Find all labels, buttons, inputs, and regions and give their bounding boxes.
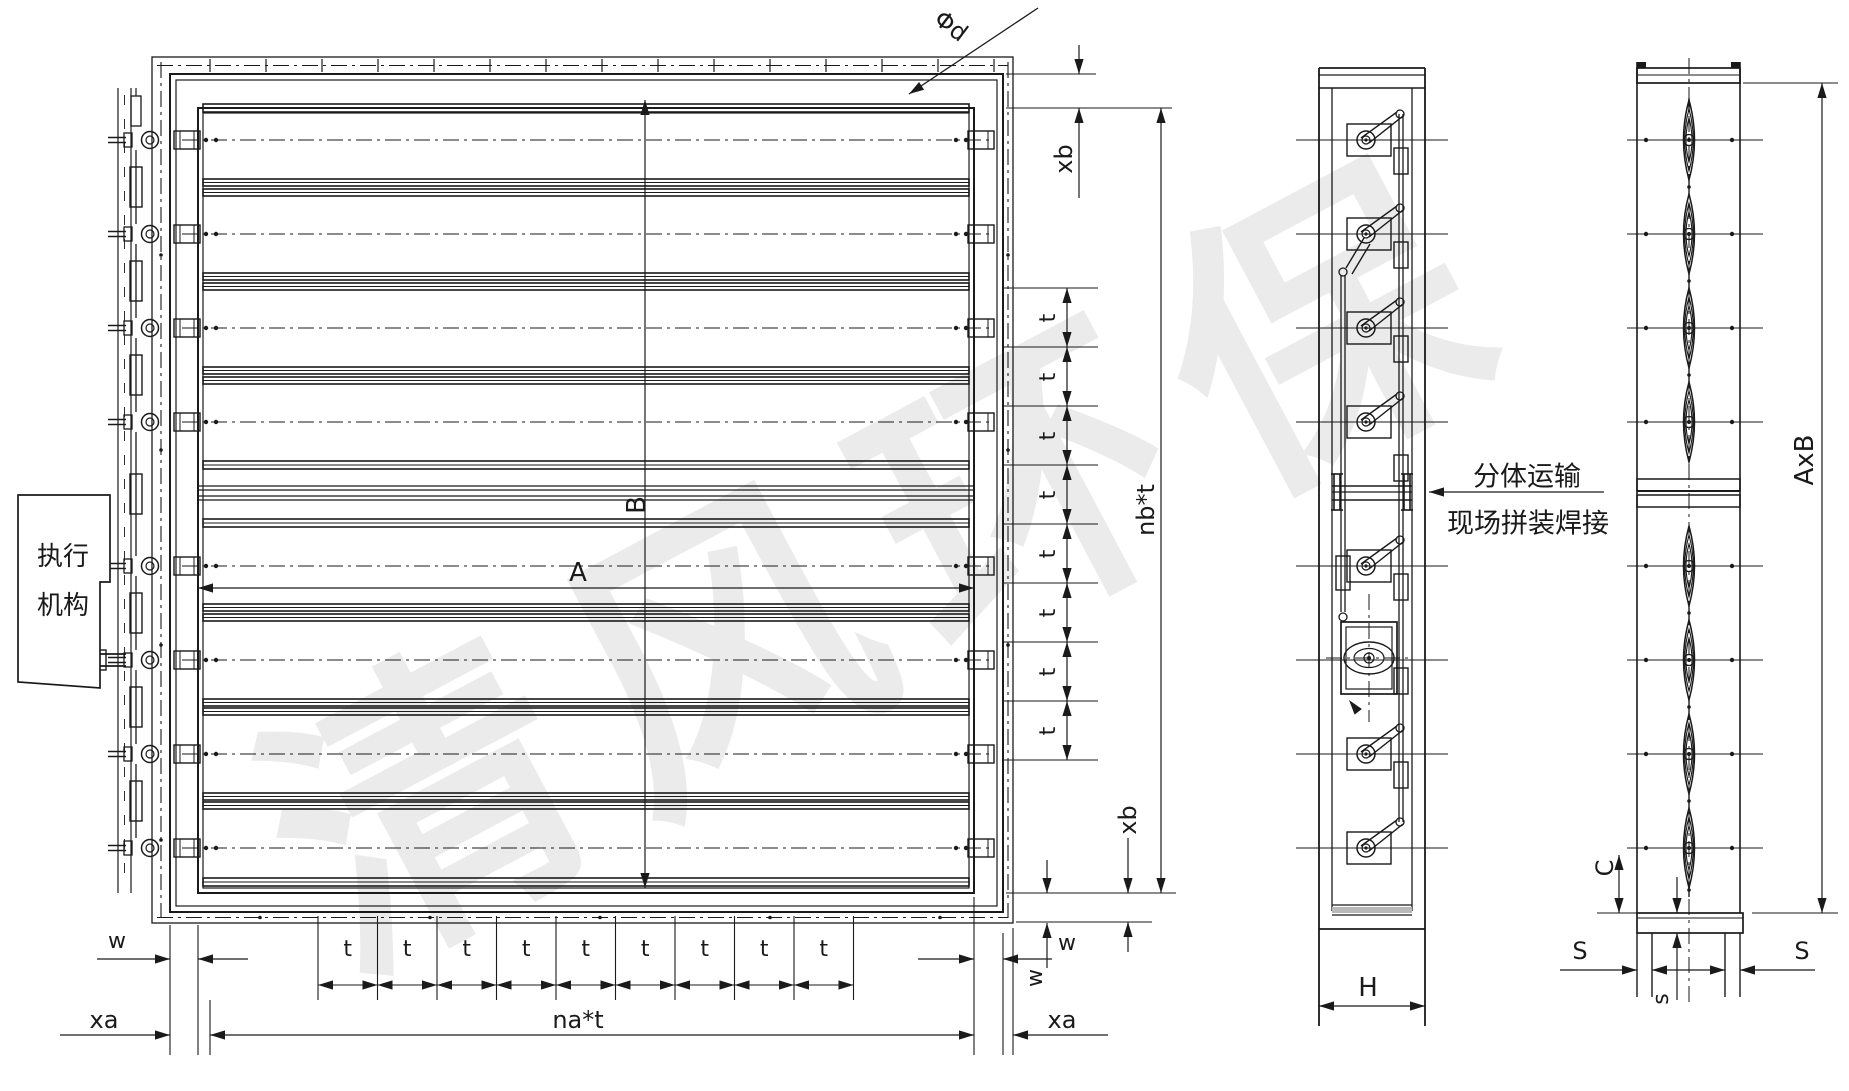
dim-t: t [522, 939, 531, 961]
actuator-label-line1: 执行 [37, 544, 89, 570]
site-note-line1: 分体运输 [1473, 464, 1581, 491]
dim-xa-left: xa [90, 1008, 119, 1032]
dim-w-left: w [108, 931, 126, 953]
dim-nb-t: nb*t [1134, 484, 1158, 536]
dim-t: t [760, 939, 769, 961]
dim-H: H [1358, 975, 1378, 1001]
dim-B: B [624, 496, 650, 514]
dim-xa-right: xa [1048, 1008, 1077, 1032]
dim-S-left: S [1572, 939, 1587, 963]
dim-t: t [403, 939, 412, 961]
dim-t: t [700, 939, 709, 961]
dim-t: t [641, 939, 650, 961]
site-note-line2: 现场拼装焊接 [1447, 511, 1609, 538]
dim-t: t [1038, 726, 1060, 735]
dim-C: C [1593, 860, 1617, 877]
dim-w-right: w [1058, 933, 1076, 955]
dim-AxB: AxB [1792, 434, 1818, 485]
dim-t: t [1038, 608, 1060, 617]
dim-s-vertical: s [1651, 993, 1673, 1004]
dim-t: t [1038, 549, 1060, 558]
dim-t: t [1038, 372, 1060, 381]
dim-t: t [581, 939, 590, 961]
dim-xb-top: xb [1052, 144, 1076, 173]
cad-linework [0, 0, 1849, 1091]
dim-t: t [1038, 313, 1060, 322]
dim-t: t [462, 939, 471, 961]
dim-na-t: na*t [552, 1008, 603, 1032]
dim-t: t [343, 939, 352, 961]
dim-t: t [1038, 667, 1060, 676]
damper-engineering-drawing: 清风环保 Φd xb nb*t xb w w xa w xa na*t A B … [0, 0, 1849, 1091]
dim-t: t [1038, 431, 1060, 440]
dim-S-right: S [1794, 939, 1809, 963]
dim-t: t [1038, 490, 1060, 499]
dim-A: A [569, 560, 587, 586]
actuator-label-line2: 机构 [37, 593, 89, 619]
dim-w-vertical: w [1025, 969, 1047, 987]
dim-t: t [819, 939, 828, 961]
dim-xb-bottom: xb [1116, 805, 1140, 834]
